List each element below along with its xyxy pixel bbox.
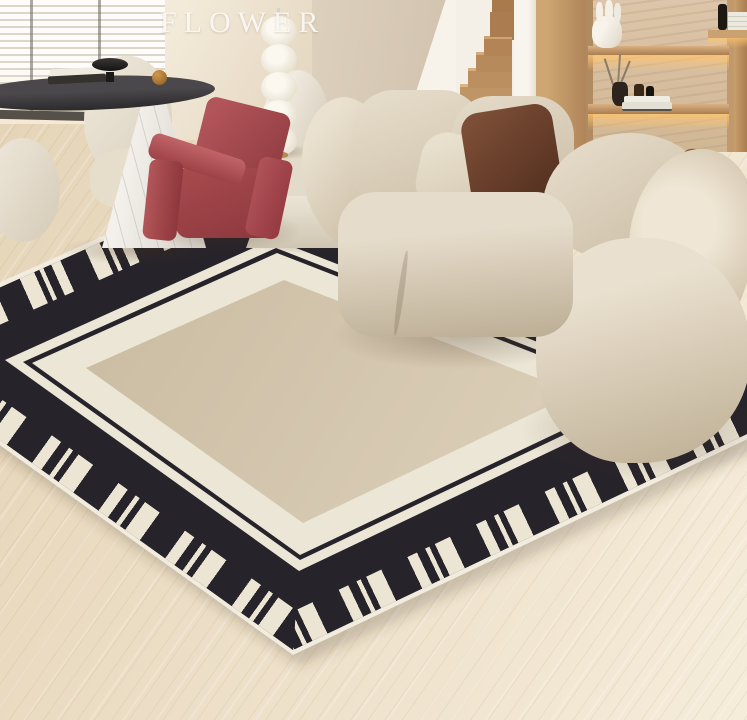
room-scene: FLOWER <box>0 0 747 720</box>
sofa-seat <box>338 192 573 337</box>
watermark-text: FLOWER <box>160 6 325 40</box>
watermark-label: FLOWER <box>160 6 325 39</box>
table-bowl <box>92 58 128 71</box>
lamp-sphere <box>261 72 297 103</box>
table-bowl-stem <box>106 72 114 82</box>
decor-ball <box>152 70 167 85</box>
lamp-sphere <box>261 44 297 75</box>
